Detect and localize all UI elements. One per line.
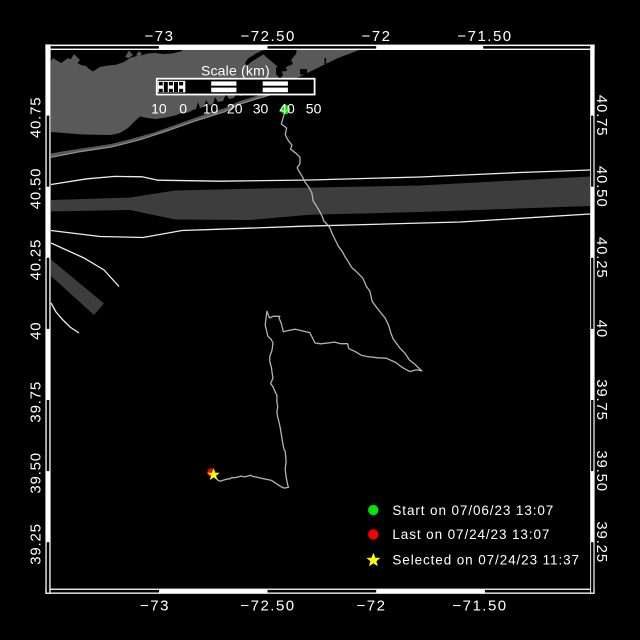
svg-text:−73: −73: [145, 28, 175, 45]
svg-text:40.50: 40.50: [593, 166, 610, 208]
svg-text:Last on 07/24/23 13:07: Last on 07/24/23 13:07: [392, 527, 550, 542]
svg-text:39.50: 39.50: [593, 450, 610, 492]
svg-text:−72.50: −72.50: [241, 28, 296, 45]
svg-text:39.75: 39.75: [593, 379, 610, 421]
svg-text:−71.50: −71.50: [457, 28, 512, 45]
svg-text:40: 40: [28, 322, 45, 340]
svg-text:20: 20: [227, 101, 243, 117]
svg-text:40.50: 40.50: [28, 168, 45, 210]
svg-text:40.75: 40.75: [28, 97, 45, 139]
svg-text:−71.50: −71.50: [452, 598, 507, 615]
svg-text:50: 50: [306, 101, 322, 117]
svg-text:−72.50: −72.50: [240, 598, 295, 615]
svg-text:40.25: 40.25: [28, 239, 45, 281]
svg-text:40.25: 40.25: [593, 237, 610, 279]
svg-text:39.75: 39.75: [28, 381, 45, 423]
svg-text:−72: −72: [357, 598, 387, 615]
svg-text:10: 10: [203, 101, 219, 117]
svg-text:39.50: 39.50: [28, 452, 45, 494]
svg-text:0: 0: [179, 101, 187, 117]
svg-text:30: 30: [253, 101, 269, 117]
svg-text:Selected on 07/24/23 11:37: Selected on 07/24/23 11:37: [392, 553, 580, 568]
svg-text:−72: −72: [362, 28, 392, 45]
svg-text:40.75: 40.75: [593, 95, 610, 137]
svg-text:Start on 07/06/23 13:07: Start on 07/06/23 13:07: [392, 503, 554, 518]
svg-text:Scale (km): Scale (km): [201, 62, 270, 78]
svg-text:10: 10: [151, 101, 167, 117]
svg-text:40: 40: [279, 101, 295, 117]
svg-text:−73: −73: [140, 598, 170, 615]
svg-text:39.25: 39.25: [593, 521, 610, 563]
svg-text:40: 40: [593, 320, 610, 338]
svg-text:39.25: 39.25: [28, 523, 45, 565]
